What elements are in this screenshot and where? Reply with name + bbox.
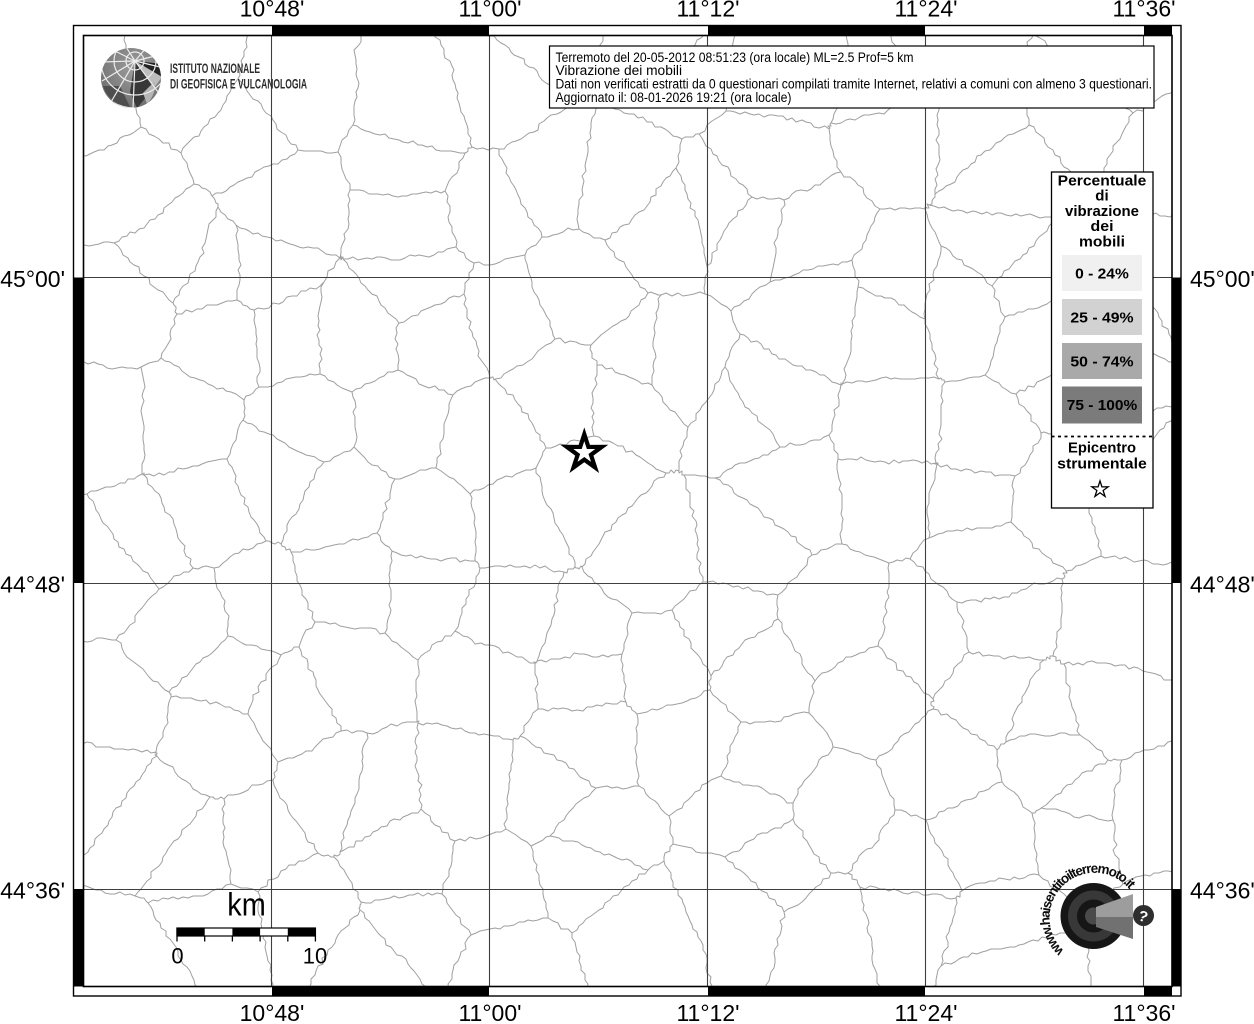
svg-text:11°00': 11°00' xyxy=(458,0,521,22)
svg-text:11°24': 11°24' xyxy=(894,1000,957,1024)
svg-text:vibrazione: vibrazione xyxy=(1065,204,1139,220)
svg-text:di: di xyxy=(1095,189,1108,205)
svg-text:Percentuale: Percentuale xyxy=(1058,173,1147,189)
svg-text:10°48': 10°48' xyxy=(240,1000,305,1024)
svg-text:dei: dei xyxy=(1091,219,1114,235)
svg-text:10: 10 xyxy=(303,944,327,969)
svg-text:44°48': 44°48' xyxy=(0,572,65,598)
svg-text:km: km xyxy=(227,887,266,923)
svg-text:Epicentro: Epicentro xyxy=(1068,440,1136,457)
svg-text:75 - 100%: 75 - 100% xyxy=(1067,398,1138,414)
svg-text:0: 0 xyxy=(171,944,183,969)
svg-text:11°36': 11°36' xyxy=(1112,1000,1175,1024)
svg-text:strumentale: strumentale xyxy=(1057,456,1147,473)
svg-text:44°36': 44°36' xyxy=(0,878,65,904)
svg-text:ISTITUTO NAZIONALE: ISTITUTO NAZIONALE xyxy=(170,60,260,76)
svg-text:11°36': 11°36' xyxy=(1112,0,1175,22)
svg-text:44°36': 44°36' xyxy=(1190,878,1254,904)
svg-text:0 - 24%: 0 - 24% xyxy=(1075,267,1129,283)
svg-text:Aggiornato il: 08-01-2026 19:2: Aggiornato il: 08-01-2026 19:21 (ora loc… xyxy=(556,90,792,106)
svg-text:10°48': 10°48' xyxy=(240,0,305,22)
svg-text:25 - 49%: 25 - 49% xyxy=(1070,311,1133,327)
svg-text:11°12': 11°12' xyxy=(676,0,739,22)
svg-text:11°24': 11°24' xyxy=(894,0,957,22)
svg-text:50 - 74%: 50 - 74% xyxy=(1070,355,1133,371)
svg-text:mobili: mobili xyxy=(1079,235,1125,251)
svg-text:11°00': 11°00' xyxy=(458,1000,521,1024)
svg-text:11°12': 11°12' xyxy=(676,1000,739,1024)
svg-text:45°00': 45°00' xyxy=(1190,266,1254,292)
svg-text:45°00': 45°00' xyxy=(0,266,65,292)
svg-text:44°48': 44°48' xyxy=(1190,572,1254,598)
svg-text:DI GEOFISICA E VULCANOLOGIA: DI GEOFISICA E VULCANOLOGIA xyxy=(170,76,307,92)
